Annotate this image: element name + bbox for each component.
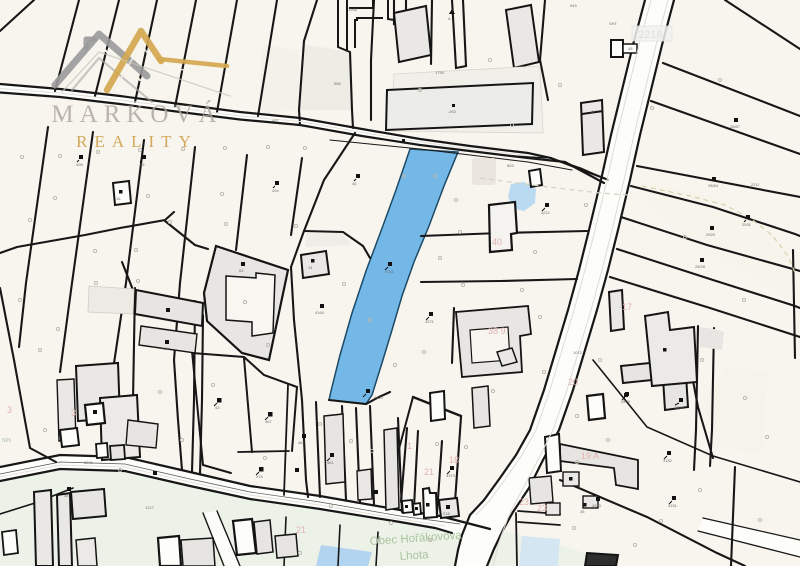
svg-text:893: 893 <box>507 163 514 168</box>
svg-text:A: A <box>448 16 451 21</box>
svg-text:14: 14 <box>308 265 313 270</box>
svg-text:2929: 2929 <box>706 232 716 237</box>
svg-text:REALITY: REALITY <box>76 132 198 151</box>
svg-text:461: 461 <box>327 460 334 465</box>
svg-text:3: 3 <box>71 408 76 418</box>
svg-text:487: 487 <box>272 118 279 123</box>
svg-text:SHT: SHT <box>609 21 618 26</box>
svg-text:1948: 1948 <box>348 7 358 12</box>
svg-text:494: 494 <box>272 188 279 193</box>
svg-text:2218: 2218 <box>638 29 662 41</box>
svg-text:20: 20 <box>568 377 578 387</box>
svg-text:23: 23 <box>519 497 529 507</box>
svg-text:63: 63 <box>239 268 244 273</box>
svg-text:467: 467 <box>265 419 272 424</box>
svg-text:26: 26 <box>580 509 585 514</box>
svg-text:2211: 2211 <box>751 182 760 187</box>
svg-text:945: 945 <box>570 3 577 8</box>
svg-text:MARKOVÁ: MARKOVÁ <box>51 100 222 128</box>
svg-text:28/87: 28/87 <box>730 124 741 129</box>
svg-text:43: 43 <box>215 405 220 410</box>
svg-text:3: 3 <box>7 405 12 415</box>
svg-text:4164: 4164 <box>315 310 325 315</box>
svg-text:4212: 4212 <box>541 210 551 215</box>
svg-text:-492: -492 <box>448 109 457 114</box>
svg-text:-17: -17 <box>619 302 632 312</box>
svg-text:28/28: 28/28 <box>695 264 706 269</box>
svg-text:4371: 4371 <box>425 319 435 324</box>
svg-text:28/84: 28/84 <box>708 183 719 188</box>
svg-text:1: 1 <box>407 441 412 451</box>
svg-text:45: 45 <box>628 46 633 51</box>
svg-text:2931: 2931 <box>742 222 752 227</box>
svg-text:Lhota: Lhota <box>399 549 429 563</box>
svg-text:3249: 3249 <box>675 405 685 410</box>
svg-text:4373: 4373 <box>592 503 602 508</box>
svg-text:966: 966 <box>334 81 341 86</box>
svg-text:21: 21 <box>424 467 434 477</box>
svg-text:N65: N65 <box>2 438 11 444</box>
svg-text:18: 18 <box>449 455 459 465</box>
svg-text:218: 218 <box>443 511 450 516</box>
svg-text:3152: 3152 <box>663 458 673 463</box>
svg-text:23: 23 <box>537 503 547 513</box>
svg-text:4161: 4161 <box>385 269 395 274</box>
svg-text:908: 908 <box>162 346 169 351</box>
svg-text:2879: 2879 <box>621 399 631 404</box>
svg-text:1217: 1217 <box>145 505 155 510</box>
svg-text:48: 48 <box>64 493 69 498</box>
svg-text:4373: 4373 <box>446 473 456 478</box>
svg-text:1072: 1072 <box>573 350 583 355</box>
svg-text:3151: 3151 <box>668 503 678 508</box>
svg-text:6241: 6241 <box>84 460 94 465</box>
svg-text:40: 40 <box>492 237 502 247</box>
svg-text:46: 46 <box>140 162 145 167</box>
svg-text:462: 462 <box>298 440 305 445</box>
svg-text:16: 16 <box>116 196 121 201</box>
svg-text:21: 21 <box>296 525 306 535</box>
svg-text:4420: 4420 <box>374 395 384 400</box>
svg-text:1794: 1794 <box>435 70 445 75</box>
svg-text:19 A: 19 A <box>581 451 599 461</box>
svg-text:498: 498 <box>76 162 83 167</box>
svg-text:378: 378 <box>256 474 263 479</box>
svg-text:46: 46 <box>352 181 357 186</box>
svg-text:38 9: 38 9 <box>488 326 506 336</box>
